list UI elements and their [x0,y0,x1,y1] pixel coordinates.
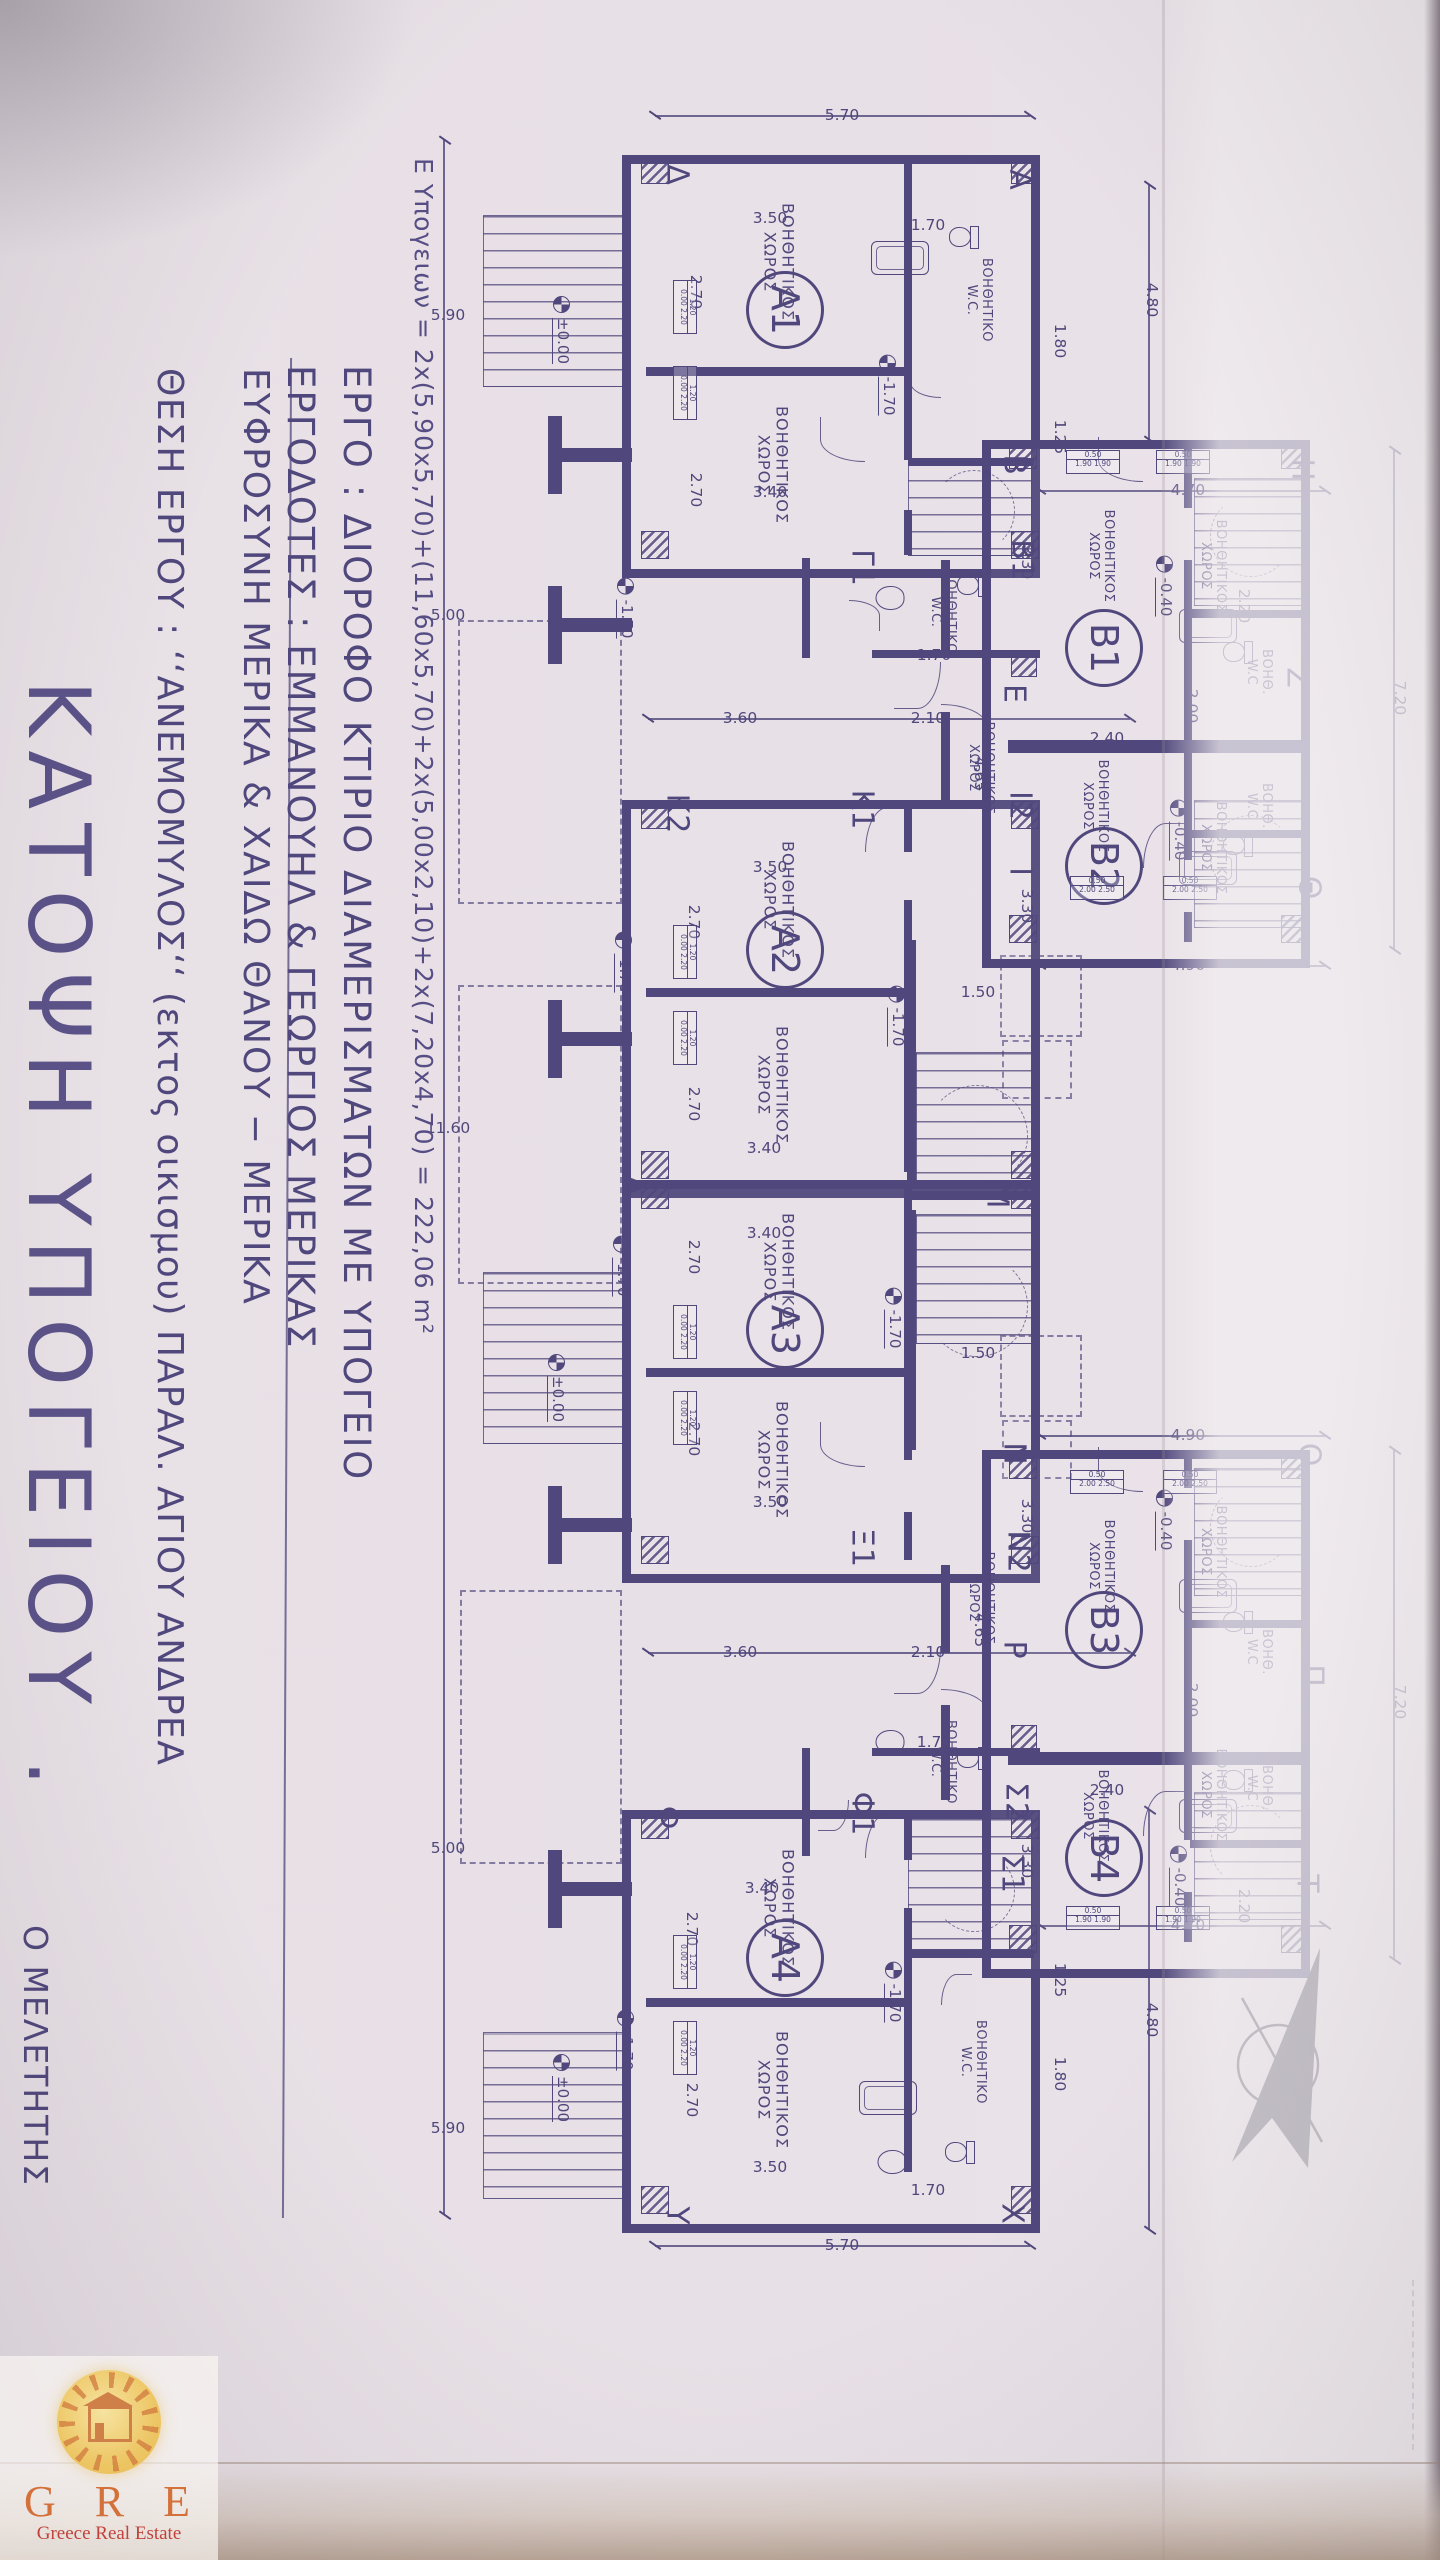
level-marker: -0.40 [1155,1490,1175,1551]
dimension-text: 2.00 [1183,1683,1201,1718]
dimension-text: 3.40 [745,1879,780,1897]
dimension-text: 3.30 [1018,1844,1036,1879]
grid-letter: Λ [617,1175,652,1197]
grid-letter: Φ1 [845,1792,880,1837]
wall-segment [548,1000,562,1078]
wall-segment [548,416,562,494]
room-label: ΒΟΗΘΗΤΙΚΟΣΧΩΡΟΣ [754,1026,791,1144]
unit-number-circle: Α4 [746,1919,824,1997]
dimension-text: 2.70 [685,1087,703,1122]
grid-letter: Ζ [1280,667,1315,689]
dimension-text: 1.70 [917,1733,952,1751]
wall-segment [646,1368,904,1377]
grid-letter: Γ1 [845,549,880,587]
wc-room-label: ΒΟΗΘ.W.C [1243,783,1273,829]
opening-tag: 1.200.00 2.20 [673,1391,697,1445]
opening-tag: 1.200.00 2.20 [673,1935,697,1989]
unit-number-circle: Β1 [1065,609,1143,687]
dimension-text: 2.10 [911,709,946,727]
door-swing-arc [894,662,941,709]
wc-room-label: ΒΟΗΘΗΤΙΚΟW.C. [963,258,993,342]
dimension-text: 3.30 [1018,545,1036,580]
room-label: ΒΟΗΘΗΤΙΚΟΣΧΩΡΟΣ [754,406,791,524]
dimension-text: 4.65 [971,757,989,792]
level-marker: ±0.00 [547,1354,567,1422]
dimension-text: 5.00 [431,1839,466,1857]
opening-tag: 0.501.90 1.90 [1066,450,1120,474]
room-label: ΒΟΗΘΗΤΙΚΟΣΧΩΡΟΣ [754,2031,791,2149]
dimension-text: 2.00 [1183,689,1201,724]
grid-letter: Μ [980,1183,1015,1210]
level-symbol-icon [618,578,635,595]
dimension-text: 2.40 [1090,729,1125,747]
dimension-text: 5.70 [825,106,860,124]
wall-hatch-pier [1012,1726,1036,1750]
opening-tag: 0.502.00 2.50 [1163,1470,1217,1494]
level-marker: ±0.00 [552,296,572,364]
dimension-tick [1144,2225,1156,2234]
wc-room-label: ΒΟΗΘ.W.C [1243,649,1273,695]
grid-letter: Α [1003,169,1038,191]
dimension-text: 7.20 [1391,681,1409,716]
dimension-text: 2.10 [911,1643,946,1661]
unit-number-circle: Α2 [746,911,824,989]
level-marker: -1.70 [612,1236,632,1297]
grid-letter: Ο [1292,1443,1327,1468]
wall-segment [802,558,810,658]
sink-fixture [876,1730,905,1754]
owners-line: ΕΡΓΟΔΟΤΕΣ : ΕΜΜΑΝΟΥΗΛ & ΓΕΩΡΓΙΟΣ ΜΕΡΙΚΑΣ [279,365,322,1350]
dimension-text: 1.50 [961,983,996,1001]
dimension-text: 1.70 [911,216,946,234]
grid-letter: Ρ [997,1640,1032,1659]
dimension-tick [1389,445,1401,454]
dimension-text: 7.20 [1391,1685,1409,1720]
bath-fixture [871,241,929,275]
dimension-text: 2.70 [687,473,705,508]
dimension-line [443,140,445,2215]
level-symbol-icon [880,355,897,372]
wc-fixture [949,226,979,248]
sink-fixture [876,586,905,610]
level-symbol-icon [554,296,571,313]
opening-tag: 1.200.00 2.20 [673,1305,697,1359]
level-symbol-icon [1157,556,1174,573]
dimension-text: 4.65 [971,1613,989,1648]
opening-tag: 1.200.00 2.20 [673,2021,697,2075]
dimension-tick [439,2210,451,2219]
wc-room-label: ΒΟΗΘ.W.C [1243,1765,1273,1811]
level-symbol-icon [886,1962,903,1979]
level-marker: -1.70 [884,1288,904,1349]
dimension-text: 4.90 [1171,1426,1206,1444]
opening-tag: 0.502.00 2.50 [1163,876,1217,900]
opening-tag: 1.200.00 2.20 [673,1011,697,1065]
dimension-text: 4.80 [1143,283,1161,318]
dimension-text: 1.70 [917,646,952,664]
wc-fixture [957,1747,987,1769]
wc-fixture [945,2141,975,2163]
dimension-text: 4.70 [1171,481,1206,499]
level-marker: ±0.00 [552,2054,572,2122]
projection-dashed-outline [458,620,622,904]
basement-area-formula: Ε Υπογειων = 2x(5,90x5,70)+(11,60x5,70)+… [409,158,438,1335]
grid-letter: Δ [660,164,695,186]
dimension-text: 3.40 [747,1224,782,1242]
opening-tag: 1.200.00 2.20 [673,366,697,420]
gre-sun-icon [57,2370,161,2474]
wc-fixture [957,574,987,596]
level-symbol-icon [549,1354,566,1371]
grid-letter: Π [1295,1664,1330,1688]
level-marker: -1.70 [614,932,634,993]
grid-letter: Ι [1003,867,1038,877]
owners-line-2: ΕΥΦΡΟΣΥΝΗ ΜΕΡΙΚΑ & ΧΑΙΔΩ ΘΑΝΟΥ − ΜΕΡΙΚΑ [235,368,276,1306]
grid-letter: Κ2 [660,794,695,835]
dimension-tick [1389,945,1401,954]
dimension-text: 3.50 [753,2158,788,2176]
dimension-tick [439,135,451,144]
north-arrow-icon [1100,1900,1360,2220]
room-label-small: ΒΟΗΘΗΤΙΚΟΣΧΩΡΟΣ [1197,1749,1227,1842]
dimension-tick [1389,1955,1401,1964]
room-label-small: ΒΟΗΘΗΤΙΚΟΣΧΩΡΟΣ [1197,520,1227,613]
dimension-text: 2.70 [683,2083,701,2118]
designer-label: Ο ΜΕΛΕΤΗΤΗΣ [16,1925,55,2187]
dimension-text: 2.70 [685,1240,703,1275]
level-marker: -0.40 [1169,1846,1189,1907]
dimension-text: 1.25 [1051,1963,1069,1998]
grid-letter: Θ [1292,876,1327,901]
unit-number-circle: Β4 [1065,1819,1143,1897]
wall-segment [907,1210,916,1450]
projection-dashed-outline [460,1590,622,1864]
grid-letter: Ε [997,684,1032,704]
level-symbol-icon [886,1288,903,1305]
scanned-blueprint-photo: ΒΟΗΘΗΤΙΚΟΣΧΩΡΟΣΒΟΗΘΗΤΙΚΟΣΧΩΡΟΣΒΟΗΘΗΤΙΚΟΣ… [0,0,1440,2560]
dimension-text: 3.60 [723,1643,758,1661]
wall-segment [1008,1752,1304,1765]
gre-company-name: Greece Real Estate [37,2523,182,2545]
grid-letter: Κ1 [845,790,880,831]
dimension-text: 2.40 [1090,1781,1125,1799]
wall-hatch-pier [642,1537,668,1563]
grid-letter: Χ [995,2203,1030,2225]
wall-hatch-pier [642,1152,668,1178]
wall-segment [1008,740,1304,753]
wc-room-label: ΒΟΗΘΗΤΙΚΟW.C. [927,570,957,654]
level-marker: -1.70 [884,1962,904,2023]
gre-acronym: G R E [14,2476,204,2527]
grid-letter: Σ2 [999,1782,1034,1822]
level-symbol-icon [1171,1846,1188,1863]
dimension-text: 5.70 [825,2236,860,2254]
wall-hatch-pier [1012,1182,1038,1208]
dimension-text: 4.90 [1171,956,1206,974]
opening-tag: 1.200.00 2.20 [673,280,697,334]
project-line: ΕΡΓΟ : ΔΙΟΡΟΦΟ ΚΤΙΡΙΟ ΔΙΑΜΕΡΙΣΜΑΤΩΝ ΜΕ Υ… [335,365,378,1482]
wall-segment [1184,912,1192,942]
wall-segment [904,1512,912,1560]
wall-segment [941,1565,950,1653]
dimension-text: 1.80 [1051,2057,1069,2092]
bath-fixture [1179,609,1237,643]
opening-tag: 0.501.90 1.90 [1156,450,1210,474]
stair-walkline-arc [926,1255,1028,1357]
gre-house-icon [88,2406,132,2442]
wall-hatch-pier [642,532,668,558]
level-symbol-icon [618,2010,635,2027]
dimension-text: 3.40 [753,483,788,501]
grid-letter: Η [1285,458,1320,482]
gre-watermark-logo: G R E Greece Real Estate [0,2356,218,2560]
wall-segment [904,163,912,460]
wc-room-label: ΒΟΗΘΗΤΙΚΟW.C. [957,2020,987,2104]
sink-fixture [878,2150,907,2174]
dimension-tick [1144,180,1156,189]
projection-dashed-outline [458,985,622,1284]
grid-letter: Ξ1 [845,1528,880,1568]
level-marker: -1.70 [616,578,636,639]
wall-segment [646,988,904,997]
unit-number-circle: Α3 [746,1291,824,1369]
wall-segment [548,586,562,664]
level-marker: -1.70 [887,986,907,1047]
wc-room-label: ΒΟΗΘ.W.C [1243,1629,1273,1675]
grid-letter: Β [997,454,1032,476]
dashed-extension-line [1412,2280,1414,2450]
grid-letter: Ν [997,1442,1032,1465]
grid-letter: Υ [660,2206,695,2225]
grid-letter: Φ [651,1806,686,1831]
dimension-text: 3.50 [753,858,788,876]
level-marker: -1.70 [616,2010,636,2071]
dimension-text: 3.30 [1018,1499,1036,1534]
dimension-tick [1389,1445,1401,1454]
bath-fixture [859,2081,917,2115]
stair-walkline-arc [926,1085,1028,1187]
wall-segment [802,1748,810,1856]
site-line: ΘΕΣΗ ΕΡΓΟΥ : ‘‘ΑΝΕΜΟΜΥΛΟΣ‘‘ (εκτος οικισ… [149,368,190,1766]
level-symbol-icon [889,986,906,1003]
opening-tag: 0.502.00 2.50 [1070,1470,1124,1494]
room-label-small: ΒΟΗΘΗΤΙΚΟΣΧΩΡΟΣ [1085,510,1115,603]
dimension-text: 2.20 [1235,589,1253,624]
wall-segment [907,940,916,1182]
wall-segment [548,1850,562,1928]
grid-letter: Ι2 [1003,791,1038,821]
dimension-text: 3.60 [723,709,758,727]
grid-letter: Τ [1290,1874,1325,1893]
grid-letter: Ν2 [1001,1530,1036,1574]
level-symbol-icon [1171,800,1188,817]
level-symbol-icon [614,1236,631,1253]
level-symbol-icon [616,932,633,949]
dimension-text: 3.50 [753,209,788,227]
unit-number-circle: Α1 [746,271,824,349]
unit-number-circle: Β3 [1065,1591,1143,1669]
drawing-sheet: ΒΟΗΘΗΤΙΚΟΣΧΩΡΟΣΒΟΗΘΗΤΙΚΟΣΧΩΡΟΣΒΟΗΘΗΤΙΚΟΣ… [0,0,1440,2560]
level-marker: -1.70 [878,355,898,416]
dimension-text: 5.90 [431,2119,466,2137]
level-marker: -0.40 [1155,556,1175,617]
level-marker: -0.40 [1169,800,1189,861]
dimension-text: 1.70 [911,2181,946,2199]
wall-hatch-pier [1012,652,1036,676]
dimension-text: 1.80 [1051,324,1069,359]
dimension-text: 3.30 [1018,889,1036,924]
stair-walkline-arc [933,470,1015,552]
wall-segment [646,1998,904,2007]
opening-tag: 0.502.00 2.50 [1070,876,1124,900]
opening-tag: 1.200.00 2.20 [673,925,697,979]
door-swing-arc [849,600,880,631]
dimension-text: 1.50 [961,1344,996,1362]
level-symbol-icon [554,2054,571,2071]
dimension-text: 3.50 [753,1493,788,1511]
drawing-title: ΚΑΤΟΨΗ ΥΠΟΓΕΙΟΥ . [8,680,108,1801]
wall-segment [548,1486,562,1564]
dimension-text: 3.40 [747,1139,782,1157]
room-label-small: ΒΟΗΘΗΤΙΚΟΣΧΩΡΟΣ [1197,1506,1227,1599]
